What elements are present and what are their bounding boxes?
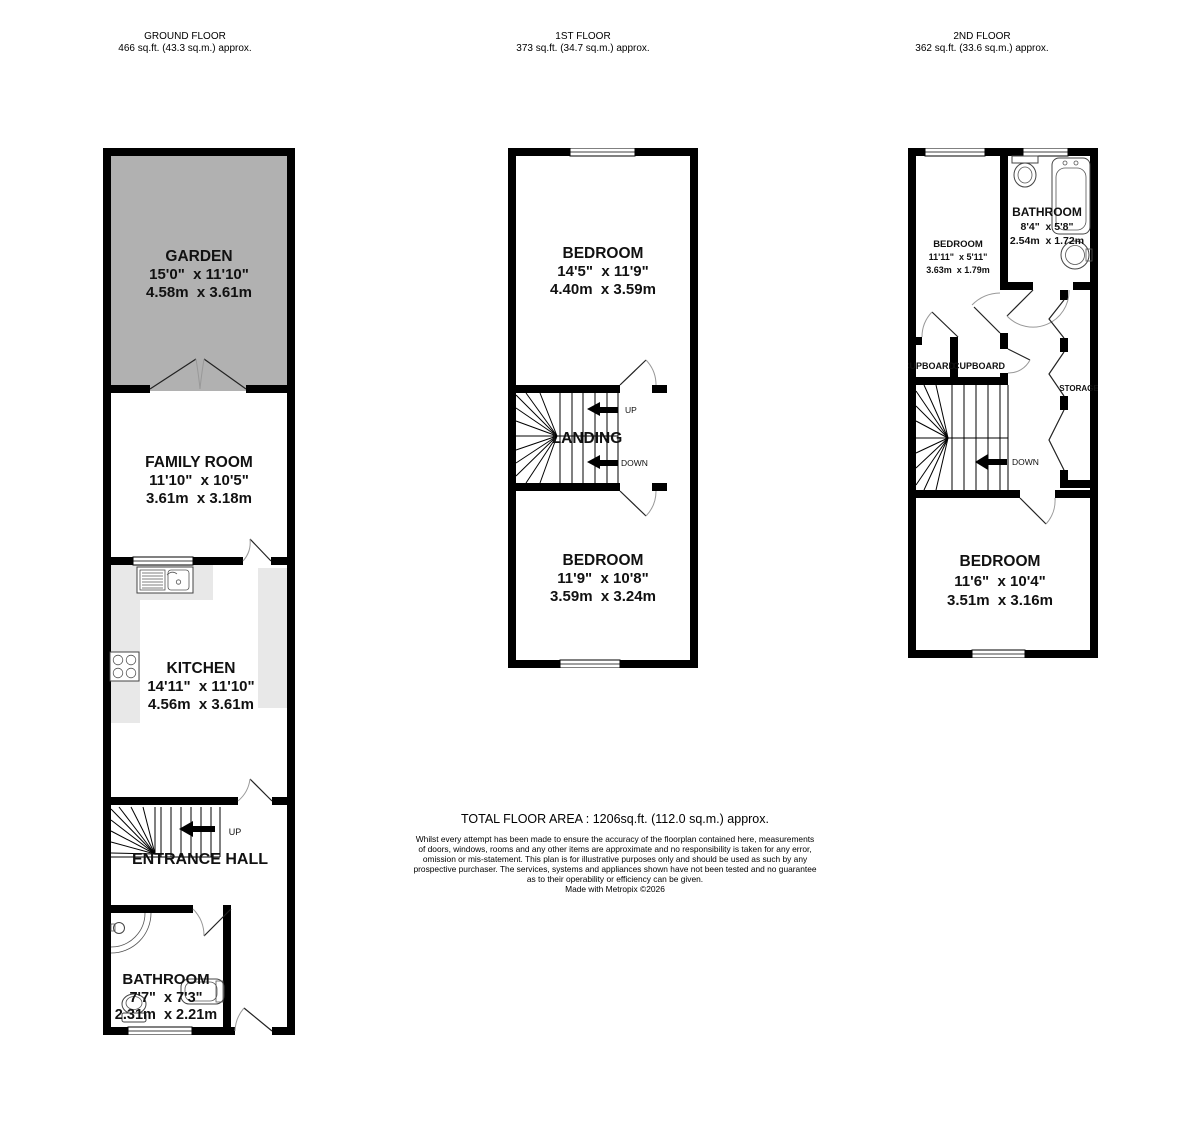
credit-line: Made with Metropix ©2026 xyxy=(365,884,865,894)
kitchen-imperial: 14'11" x 11'10" xyxy=(147,678,254,695)
down-arrow-icon xyxy=(975,454,1007,470)
ff-bedroom-front-metric: 4.40m x 3.59m xyxy=(550,281,656,298)
up-label: UP xyxy=(229,827,242,837)
shower-icon xyxy=(111,913,151,953)
ground-floor-area: 466 sq.ft. (43.3 sq.m.) approx. xyxy=(55,43,315,55)
second-floor-area: 362 sq.ft. (33.6 sq.m.) approx. xyxy=(852,43,1112,55)
first-floor-header: 1ST FLOOR 373 sq.ft. (34.7 sq.m.) approx… xyxy=(453,31,713,54)
down-arrow-icon xyxy=(587,455,618,469)
ff-bedroom-back-imperial: 11'9" x 10'8" xyxy=(557,570,648,587)
second-floor-header: 2ND FLOOR 362 sq.ft. (33.6 sq.m.) approx… xyxy=(852,31,1112,54)
bedroom-back-door xyxy=(620,491,656,516)
landing-label: LANDING xyxy=(552,430,623,447)
storage-label: STORAGE xyxy=(1059,384,1098,393)
sf-bathroom-label: BATHROOM xyxy=(1012,205,1082,219)
sf-bedroom-back-label: BEDROOM xyxy=(960,553,1041,570)
gf-bathroom-metric: 2.31m x 2.21m xyxy=(115,1007,217,1023)
garden-label: GARDEN xyxy=(165,248,232,265)
bedroom-front-door xyxy=(972,293,1000,333)
sf-bedroom-back-imperial: 11'6" x 10'4" xyxy=(954,573,1045,590)
bedroom-back-door xyxy=(1020,498,1055,524)
down-label: DOWN xyxy=(1012,457,1039,467)
down-label: DOWN xyxy=(621,458,648,468)
family-room-label: FAMILY ROOM xyxy=(145,454,253,471)
first-floor-plan: UP DOWN BEDROOM 14'5" x 11'9" 4.40m x 3.… xyxy=(508,148,698,668)
sf-bedroom-front-label: BEDROOM xyxy=(933,239,983,250)
up-label: UP xyxy=(625,405,637,415)
second-floor-title: 2ND FLOOR xyxy=(852,31,1112,43)
sf-bedroom-back-metric: 3.51m x 3.16m xyxy=(947,592,1053,609)
total-floor-area: TOTAL FLOOR AREA : 1206sq.ft. (112.0 sq.… xyxy=(365,812,865,826)
family-room-door xyxy=(243,539,271,561)
staircase xyxy=(916,385,1008,490)
cupboard-right-label: CUPBOARD xyxy=(953,361,1006,371)
ff-bedroom-back-label: BEDROOM xyxy=(563,552,644,569)
toilet-icon xyxy=(1012,156,1038,187)
entrance-hall-label: ENTRANCE HALL xyxy=(132,851,268,868)
disclaimer-line: of doors, windows, rooms and any other i… xyxy=(365,844,865,854)
cupboard-right-door xyxy=(1008,349,1030,373)
kitchen-metric: 4.56m x 3.61m xyxy=(148,696,254,713)
up-arrow-icon xyxy=(587,402,618,416)
ff-bedroom-back-metric: 3.59m x 3.24m xyxy=(550,588,656,605)
ground-floor-title: GROUND FLOOR xyxy=(55,31,315,43)
bedroom-front-door xyxy=(620,360,656,385)
sf-bathroom-metric: 2.54m x 1.72m xyxy=(1010,235,1084,247)
sf-bedroom-front-imperial: 11'11" x 5'11" xyxy=(929,252,988,262)
sink-icon xyxy=(137,567,193,593)
first-floor-title: 1ST FLOOR xyxy=(453,31,713,43)
disclaimer-line: as to their operability or efficiency ca… xyxy=(365,874,865,884)
sf-bedroom-front-metric: 3.63m x 1.79m xyxy=(926,265,990,275)
cupboard-left-label: CUPBOARD xyxy=(908,361,955,371)
hob-icon xyxy=(110,652,139,681)
ground-floor-plan: UP GARDEN 15'0" x 11'10" 4.58m x 3.61m F… xyxy=(103,148,295,1035)
kitchen-label: KITCHEN xyxy=(167,660,236,677)
bathroom-door xyxy=(1007,290,1069,327)
garden-metric: 4.58m x 3.61m xyxy=(146,284,252,301)
first-floor-area: 373 sq.ft. (34.7 sq.m.) approx. xyxy=(453,43,713,55)
disclaimer-line: Whilst every attempt has been made to en… xyxy=(365,834,865,844)
sf-bathroom-imperial: 8'4" x 5'8" xyxy=(1021,221,1074,233)
garden-imperial: 15'0" x 11'10" xyxy=(149,266,249,283)
gf-bathroom-label: BATHROOM xyxy=(122,971,209,988)
family-room-metric: 3.61m x 3.18m xyxy=(146,490,252,507)
ff-bedroom-front-imperial: 14'5" x 11'9" xyxy=(557,263,648,280)
gf-bathroom-imperial: 7'7" x 7'3" xyxy=(129,990,202,1006)
family-room-imperial: 11'10" x 10'5" xyxy=(149,472,249,489)
footer: TOTAL FLOOR AREA : 1206sq.ft. (112.0 sq.… xyxy=(365,812,865,894)
kitchen-door xyxy=(238,779,272,801)
up-arrow-icon xyxy=(179,821,215,837)
cupboard-left-door xyxy=(922,312,958,337)
disclaimer-line: omission or mis-statement. This plan is … xyxy=(365,854,865,864)
second-floor-plan: DOWN BEDROOM 11'11" x 5'11" 3.63m x 1.79… xyxy=(908,148,1098,658)
front-door xyxy=(235,1008,272,1031)
ff-bedroom-front-label: BEDROOM xyxy=(563,245,644,262)
disclaimer-line: prospective purchaser. The services, sys… xyxy=(365,864,865,874)
ground-floor-header: GROUND FLOOR 466 sq.ft. (43.3 sq.m.) app… xyxy=(55,31,315,54)
